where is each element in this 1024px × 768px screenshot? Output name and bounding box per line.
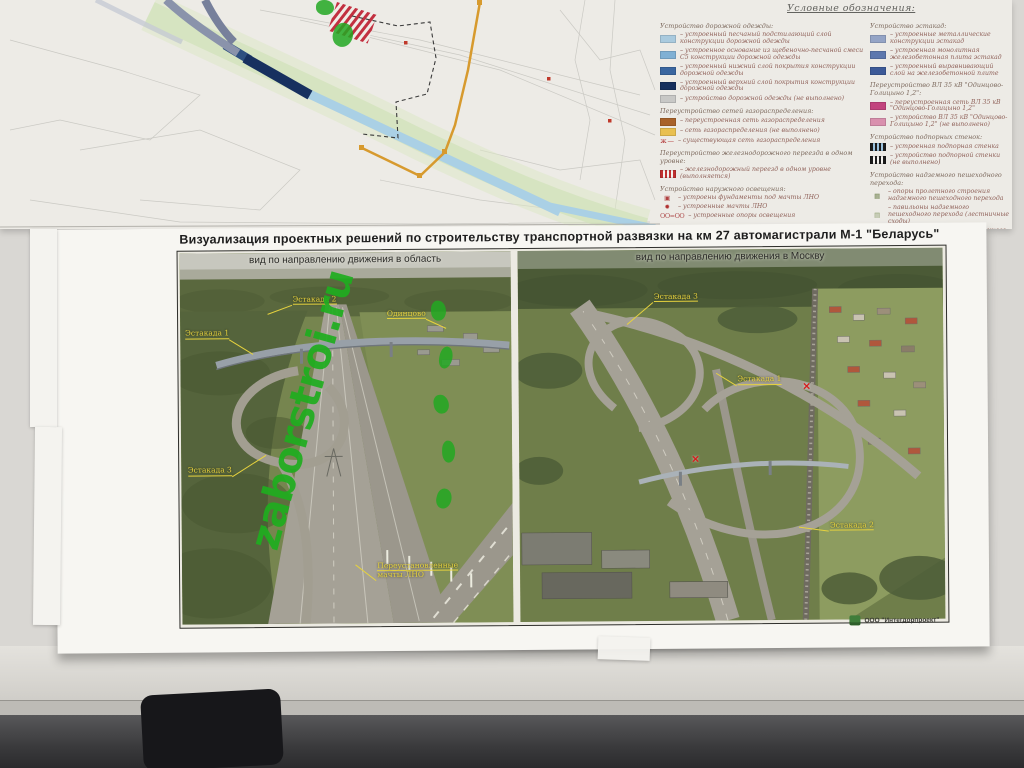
legend-section: Устройство эстакад:– устроенные металлич… bbox=[870, 22, 1010, 77]
legend-item-label: – устроенные мачты ЛНО bbox=[678, 204, 767, 211]
legend-item-label: – переустроенная сеть газораспределения bbox=[680, 118, 825, 125]
legend-item-label: – существующая сеть газораспределения bbox=[678, 138, 820, 145]
legend-section-header: Устройство подпорных стенок: bbox=[870, 133, 1010, 141]
legend-item-label: – устроенное основание из щебеночно-песч… bbox=[680, 48, 866, 62]
legend-item-label: – устройство подпорной стенки (не выполн… bbox=[890, 153, 1010, 167]
company-logo: ООО "Интегдорпроект" bbox=[849, 615, 939, 626]
legend-section-header: Устройство дорожной одежды: bbox=[660, 22, 866, 30]
render-annotation-line: Эстакада 1 bbox=[185, 329, 229, 339]
legend-swatch bbox=[660, 51, 676, 59]
paper-strip-left bbox=[33, 427, 62, 625]
render-annotation: Одинцово bbox=[387, 309, 426, 319]
legend-item-label: – устроенный выравнивающий слой на желез… bbox=[890, 64, 1010, 78]
legend-section: Устройство дорожной одежды:– устроенный … bbox=[660, 22, 866, 103]
legend-swatch bbox=[660, 82, 676, 90]
legend-section-header: Устройство надземного пешеходного перехо… bbox=[870, 171, 1010, 187]
photo-of-construction-posters: Условные обозначения: Устройство дорожно… bbox=[0, 0, 1024, 768]
render-annotation-line: Эстакада 1 bbox=[737, 375, 781, 385]
paper-strip-left bbox=[30, 229, 57, 427]
legend-item: – устройство дорожной одежды (не выполне… bbox=[660, 95, 866, 103]
legend-section-header: Переустройство сетей газораспределения: bbox=[660, 107, 866, 115]
legend-section: Устройство надземного пешеходного перехо… bbox=[870, 171, 1010, 229]
legend-swatch bbox=[660, 118, 676, 126]
watermark-fragment bbox=[442, 441, 455, 463]
render-annotation: Эстакада 3 bbox=[654, 292, 698, 302]
legend-swatch bbox=[660, 95, 676, 103]
legend-item: – устроенный выравнивающий слой на желез… bbox=[870, 64, 1010, 78]
legend-item: – устройство ВЛ 35 кВ "Одинцово-Голицыно… bbox=[870, 115, 1010, 129]
legend-swatch bbox=[870, 143, 886, 151]
legend-item: – устроенное основание из щебеночно-песч… bbox=[660, 48, 866, 62]
render-annotation-line: мачты ЛНО bbox=[377, 571, 458, 580]
legend-swatch bbox=[870, 102, 886, 110]
render-annotation-line: Эстакада 3 bbox=[188, 467, 232, 477]
legend-section-header: Устройство наружного освещения: bbox=[660, 185, 866, 193]
legend-item: – устроенный нижний слой покрытия констр… bbox=[660, 64, 866, 78]
company-logo-icon bbox=[849, 615, 860, 625]
legend-title: Условные обозначения: bbox=[787, 3, 915, 14]
render-annotation: Эстакада 2 bbox=[830, 521, 874, 531]
legend-swatch bbox=[870, 35, 886, 43]
legend-symbol: ✹ bbox=[660, 204, 674, 211]
watermark-fragment bbox=[431, 301, 446, 321]
legend-item: OO=OO– устроенные опоры освещения bbox=[660, 213, 866, 220]
legend-swatch bbox=[870, 67, 886, 75]
legend-column-right: Устройство эстакад:– устроенные металлич… bbox=[870, 18, 1010, 229]
legend-item: ▣– устроены фундаменты под мачты ЛНО bbox=[660, 195, 866, 202]
render-annotation: Эстакада 1 bbox=[185, 329, 229, 339]
legend-section: Переустройство сетей газораспределения:–… bbox=[660, 107, 866, 144]
legend-item: ж —– существующая сеть газораспределения bbox=[660, 138, 866, 145]
legend-section: Устройство наружного освещения:▣– устрое… bbox=[660, 185, 866, 220]
legend-item-label: – устроенная подпорная стенка bbox=[890, 144, 999, 151]
legend-column-left: Устройство дорожной одежды:– устроенный … bbox=[660, 18, 866, 224]
visualization-poster: Визуализация проектных решений по строит… bbox=[54, 222, 989, 653]
legend-item-label: – устроенный нижний слой покрытия констр… bbox=[680, 64, 866, 78]
watermark-fragment bbox=[316, 0, 334, 15]
render-view-moscow: вид по направлению движения в Москву Эст… bbox=[518, 248, 946, 622]
legend-swatch bbox=[660, 170, 676, 178]
legend-section: Переустройство железнодорожного переезда… bbox=[660, 149, 866, 181]
render-right-image bbox=[518, 248, 946, 622]
legend-item: – устроенная монолитная железобетонная п… bbox=[870, 48, 1010, 62]
poster-title: Визуализация проектных решений по строит… bbox=[164, 227, 954, 247]
legend-swatch bbox=[660, 67, 676, 75]
legend-item: – устроенные металлические конструкции э… bbox=[870, 32, 1010, 46]
legend-item-label: – устройство ВЛ 35 кВ "Одинцово-Голицыно… bbox=[890, 115, 1010, 129]
legend-item: – железнодорожный переезд в одном уровне… bbox=[660, 167, 866, 181]
shelf-top bbox=[0, 646, 1024, 702]
legend-swatch bbox=[660, 35, 676, 43]
legend-swatch bbox=[660, 128, 676, 136]
legend-item-label: – железнодорожный переезд в одном уровне… bbox=[680, 167, 866, 181]
legend-section-header: Переустройство железнодорожного переезда… bbox=[660, 149, 866, 165]
legend-section-header: Переустройство ВЛ 35 кВ "Одинцово-Голицы… bbox=[870, 81, 1010, 97]
legend-item-label: – устроенный песчаный подстилающий слой … bbox=[680, 32, 866, 46]
legend-item-label: – устроенные опоры освещения bbox=[688, 213, 795, 220]
legend-item-label: – устроенная монолитная железобетонная п… bbox=[890, 48, 1010, 62]
legend-item: – устроенная подпорная стенка bbox=[870, 143, 1010, 151]
legend: Условные обозначения: Устройство дорожно… bbox=[652, 0, 1012, 229]
legend-swatch bbox=[870, 51, 886, 59]
legend-symbol: OO=OO bbox=[660, 213, 684, 220]
legend-section: Переустройство ВЛ 35 кВ "Одинцово-Голицы… bbox=[870, 81, 1010, 129]
render-annotation-line: Одинцово bbox=[387, 309, 426, 319]
legend-item-label: – опоры пролетного строения надземного п… bbox=[888, 189, 1010, 203]
legend-item-label: – устроенные металлические конструкции э… bbox=[890, 32, 1010, 46]
red-x-marker: ✕ bbox=[802, 382, 810, 393]
site-plan-drawing bbox=[0, 0, 660, 229]
render-annotation: Эстакада 1 bbox=[737, 375, 781, 385]
legend-symbol: ▣ bbox=[660, 195, 674, 202]
legend-item: – устройство подпорной стенки (не выполн… bbox=[870, 153, 1010, 167]
render-annotation-line: Эстакада 2 bbox=[830, 521, 874, 531]
legend-item-label: – устроенный верхний слой покрытия конст… bbox=[680, 80, 866, 94]
legend-symbol: ▤ bbox=[870, 212, 884, 219]
legend-symbol: ж — bbox=[660, 138, 674, 145]
legend-item: – сеть газораспределения (не выполнено) bbox=[660, 128, 866, 136]
legend-item-label: – устроены фундаменты под мачты ЛНО bbox=[678, 195, 819, 202]
legend-swatch bbox=[870, 118, 886, 126]
render-annotation: Переустановленныемачты ЛНО bbox=[377, 561, 458, 580]
legend-item: ✹– устроенные мачты ЛНО bbox=[660, 204, 866, 211]
legend-item-label: – сеть газораспределения (не выполнено) bbox=[680, 128, 820, 135]
legend-item-label: – устройство дорожной одежды (не выполне… bbox=[680, 96, 844, 103]
legend-symbol: ▦ bbox=[870, 193, 884, 200]
render-annotation-line: Эстакада 3 bbox=[654, 292, 698, 302]
tape-bottom bbox=[598, 636, 651, 661]
legend-item: ▦– опоры пролетного строения надземного … bbox=[870, 189, 1010, 203]
legend-item: – переустроенная сеть ВЛ 35 кВ "Одинцово… bbox=[870, 100, 1010, 114]
legend-swatch bbox=[870, 156, 886, 164]
legend-item: – переустроенная сеть газораспределения bbox=[660, 118, 866, 126]
legend-item: – устроенный верхний слой покрытия конст… bbox=[660, 80, 866, 94]
render-annotation: Эстакада 3 bbox=[188, 467, 232, 477]
company-logo-text: ООО "Интегдорпроект" bbox=[864, 616, 939, 624]
red-x-marker: ✕ bbox=[691, 454, 699, 465]
legend-section-header: Устройство эстакад: bbox=[870, 22, 1010, 30]
dark-object bbox=[140, 688, 284, 768]
legend-item: – устроенный песчаный подстилающий слой … bbox=[660, 32, 866, 46]
legend-item-label: – переустроенная сеть ВЛ 35 кВ "Одинцово… bbox=[890, 100, 1010, 114]
legend-section: Устройство подпорных стенок:– устроенная… bbox=[870, 133, 1010, 167]
site-plan-sheet: Условные обозначения: Устройство дорожно… bbox=[0, 0, 1012, 229]
